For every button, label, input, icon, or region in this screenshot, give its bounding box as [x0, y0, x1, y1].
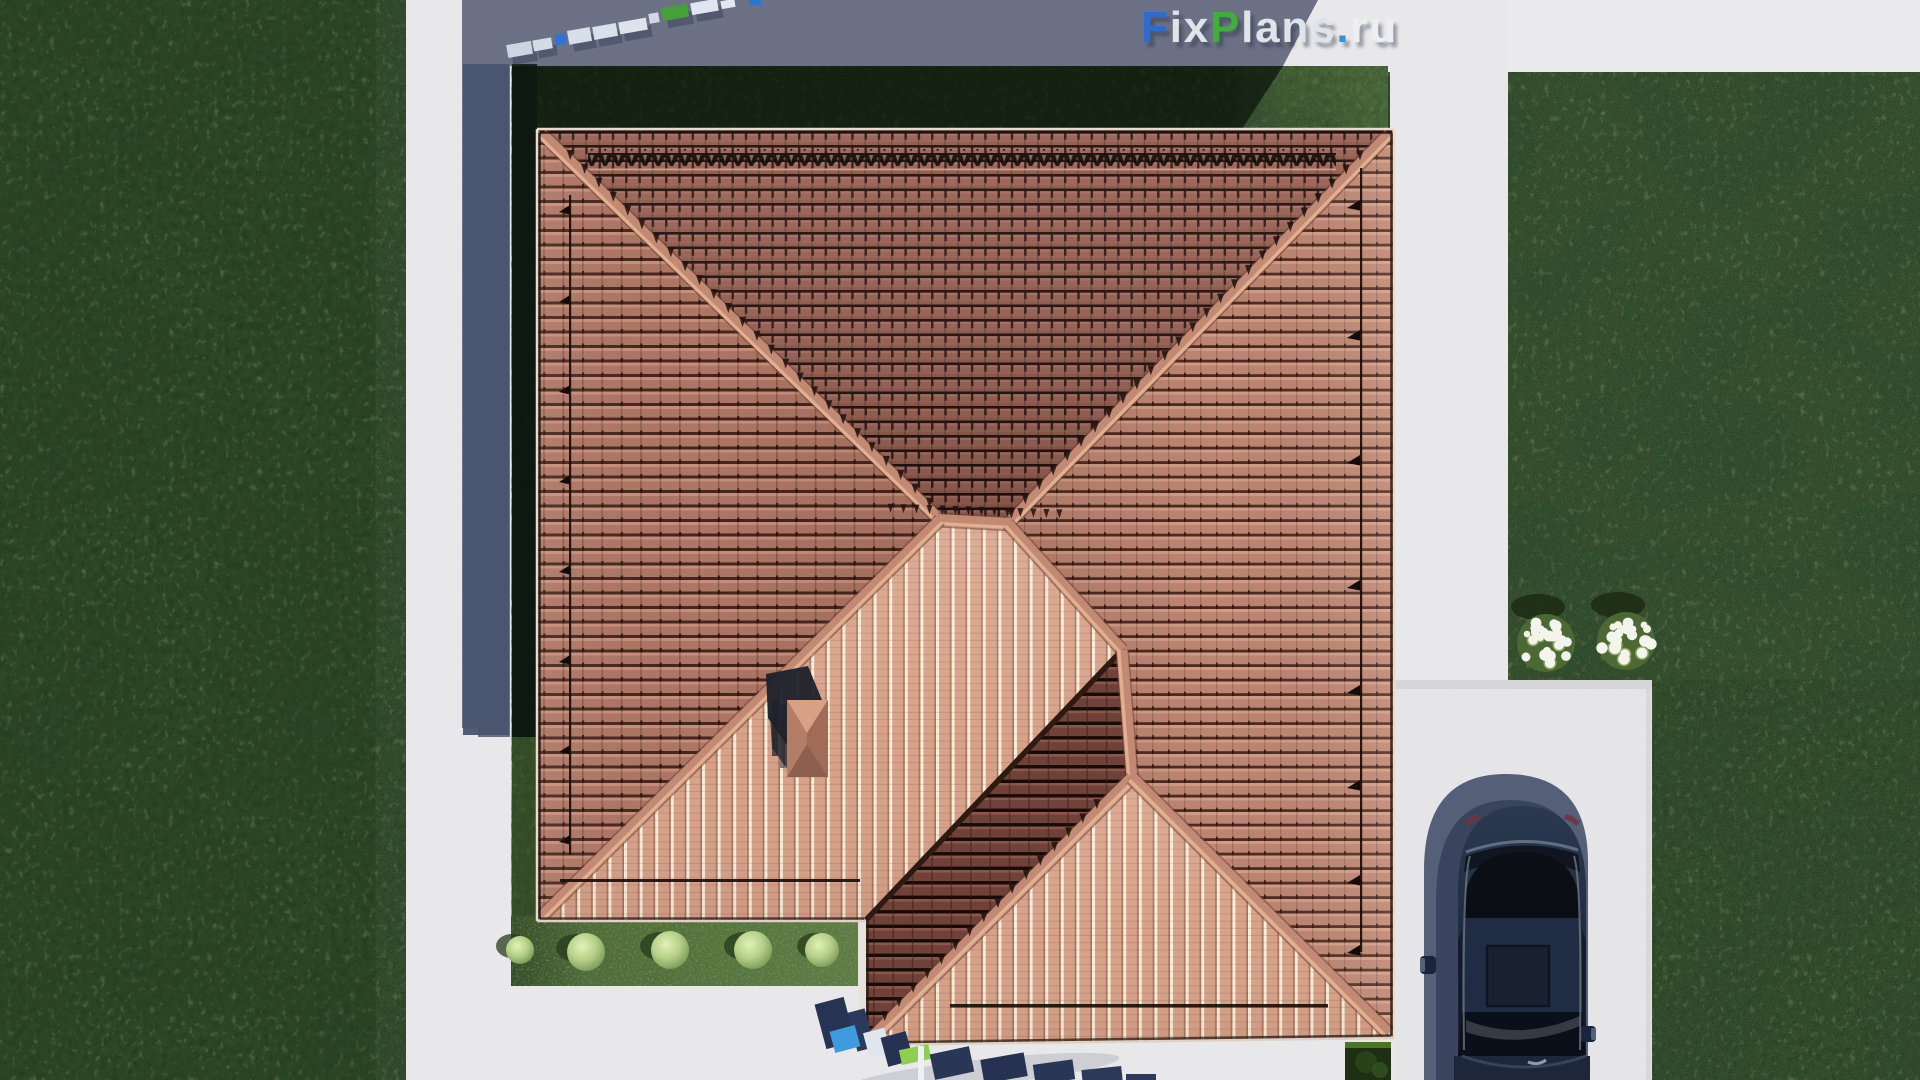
svg-text:FixPlans.ru: FixPlans.ru	[1141, 3, 1398, 52]
